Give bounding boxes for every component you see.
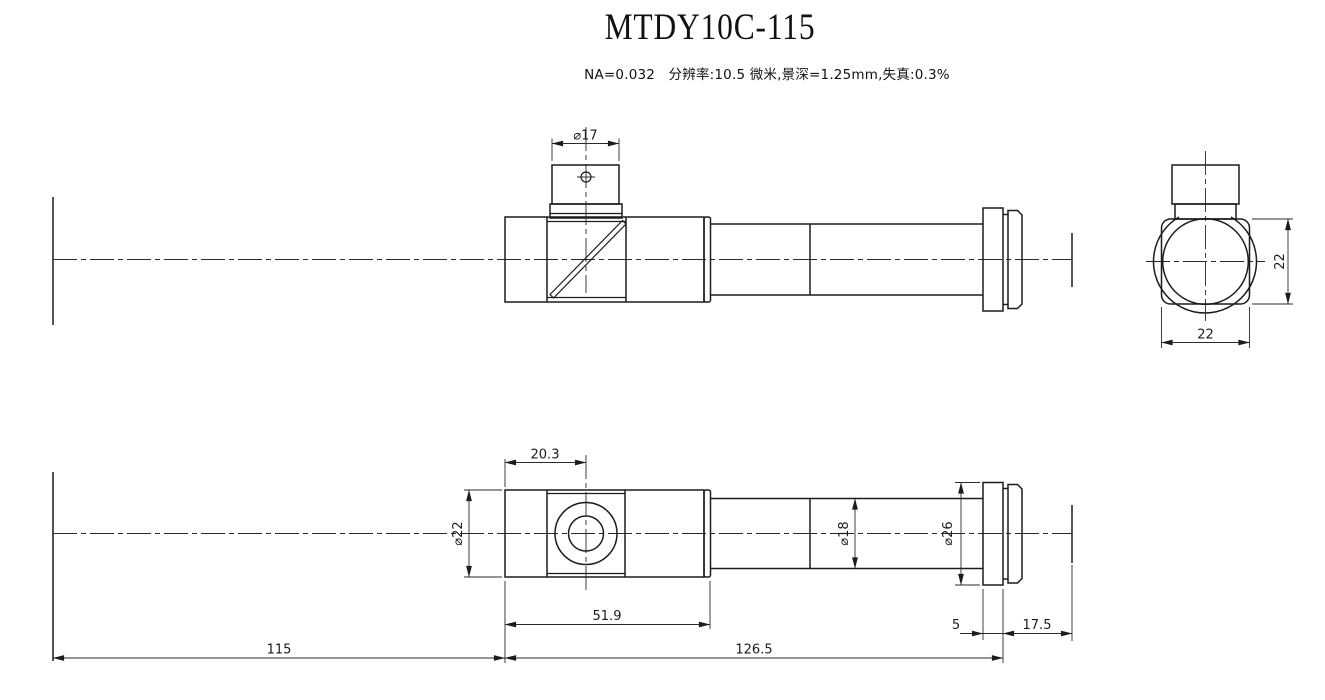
dim-object-distance: 115: [53, 643, 505, 659]
dim-label: 115: [267, 643, 292, 658]
dim-mount-length: 126.5: [505, 589, 1003, 663]
technical-drawing: ⌀17 22 22: [0, 0, 1325, 700]
dim-port-diameter: ⌀17: [552, 129, 619, 162]
dim-label: 126.5: [735, 643, 772, 658]
side-view: ⌀17: [53, 127, 1072, 325]
bottom-view: 20.3 ⌀22 ⌀18 ⌀26 51.9: [53, 448, 1072, 664]
dim-label: 22: [1197, 328, 1214, 343]
illumination-port-cylinder: [552, 165, 619, 204]
dim-label: ⌀18: [837, 521, 852, 545]
drawing-sheet: MTDY10C-115 NA=0.032 分辨率:10.5 微米,景深=1.25…: [0, 0, 1325, 700]
dim-port-offset: 20.3: [505, 448, 586, 488]
dim-label: 51.9: [593, 609, 622, 624]
dim-back-distance: 17.5: [1003, 618, 1072, 634]
dim-label: ⌀26: [941, 521, 956, 545]
dim-label: 20.3: [531, 448, 560, 463]
dim-label: ⌀17: [573, 129, 597, 144]
flange-circle: [1153, 217, 1256, 313]
dim-label: 5: [952, 618, 960, 633]
end-view: 22 22: [1146, 151, 1293, 348]
dim-flange-thickness: 5: [952, 589, 1003, 640]
dim-body-length: 51.9: [505, 581, 710, 663]
dim-label: 17.5: [1023, 618, 1052, 633]
dim-label: 22: [1273, 253, 1288, 270]
dim-label: ⌀22: [451, 521, 466, 545]
